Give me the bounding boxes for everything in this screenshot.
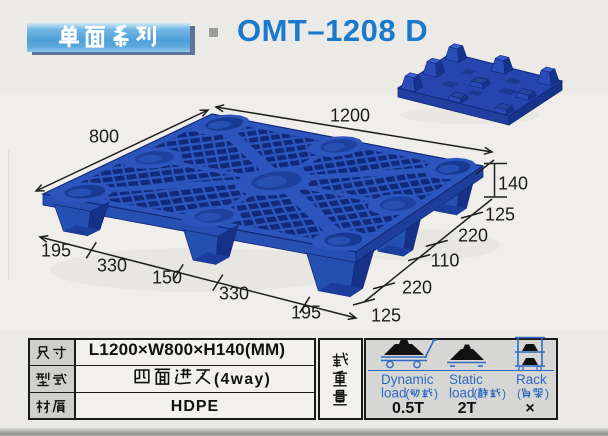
svg-text:): ) [502,387,506,401]
svg-text:): ) [434,387,438,401]
svg-text:(: ( [474,387,478,401]
svg-text:0.5T: 0.5T [392,400,424,417]
svg-text:Rack: Rack [516,372,547,387]
svg-text:(: ( [406,387,410,401]
svg-text:): ) [545,387,549,401]
svg-text:×: × [525,400,534,417]
svg-text:load: load [381,386,407,401]
svg-text:2T: 2T [458,400,477,417]
svg-text:load: load [449,386,475,401]
svg-text:(4way): (4way) [214,371,271,388]
svg-text:(: ( [517,387,521,401]
